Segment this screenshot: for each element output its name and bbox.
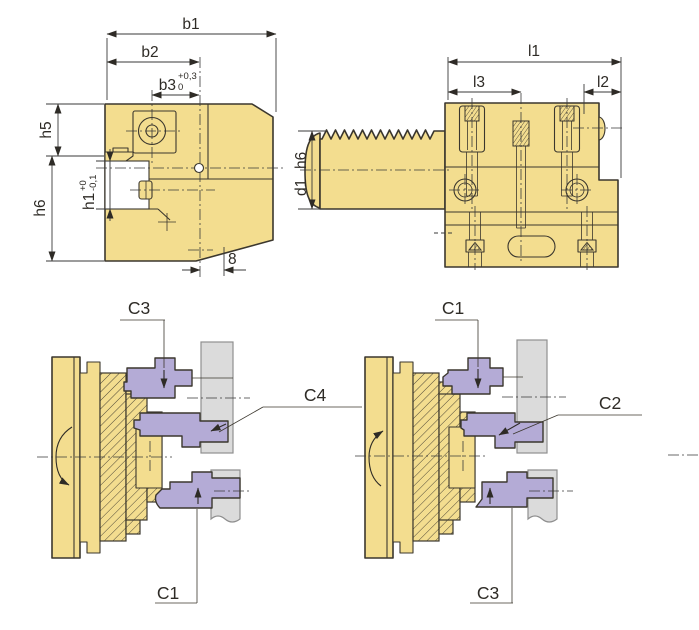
slot-lip <box>105 152 133 161</box>
dim-b3: b3 +0,3 0 <box>152 71 199 95</box>
label-c3: C3 <box>128 298 150 318</box>
technical-drawing-page: b1 b2 b3 +0,3 0 h5 h6 <box>0 0 699 630</box>
dim-h1-label: h1 <box>81 193 98 210</box>
dim-h1-tol-lower: -0,1 <box>88 175 99 191</box>
label-c1-leader: C1 <box>435 298 478 367</box>
front-view: b1 b2 b3 +0,3 0 h5 h6 <box>32 16 285 278</box>
side-view: l1 l3 l2 d1 h6 <box>293 43 622 270</box>
dim-h6-label: h6 <box>32 199 49 216</box>
dim-d1-tol-label: h6 <box>293 152 310 169</box>
label-c4: C4 <box>304 385 327 405</box>
dim-l3: l3 <box>448 74 521 92</box>
slot-lip-wedge <box>113 148 128 152</box>
right-setup-diagram: C1 C2 C3 <box>355 298 699 603</box>
dim-b2: b2 <box>107 44 199 62</box>
tool-holder-drawing: b1 b2 b3 +0,3 0 h5 h6 <box>0 0 699 630</box>
pilot-hole <box>195 164 204 173</box>
dim-d1-label: d1 <box>293 179 310 196</box>
dim-h5-label: h5 <box>38 121 55 138</box>
dim-b3-tol-upper: +0,3 <box>178 71 197 82</box>
dim-h5: h5 <box>38 104 104 156</box>
dim-b1: b1 <box>107 16 276 112</box>
side-pin-bump <box>599 117 605 140</box>
label-c1: C1 <box>157 583 179 603</box>
dim-b1-label: b1 <box>182 16 199 33</box>
serrated-shank <box>320 130 445 209</box>
label-c3-leader: C3 <box>470 508 513 603</box>
label-c2: C2 <box>599 393 621 413</box>
dim-8-label: 8 <box>228 251 237 268</box>
dim-b2-label: b2 <box>141 44 158 61</box>
label-c1-leader: C1 <box>155 509 197 603</box>
label-c1: C1 <box>442 298 464 318</box>
tool-c3-top <box>124 358 192 398</box>
left-setup-diagram: C3 C4 C1 <box>37 298 362 603</box>
dim-b3-label: b3 <box>159 77 176 94</box>
tool-c1-top <box>443 358 503 394</box>
label-c4-leader: C4 <box>219 385 362 432</box>
dim-l1-label: l1 <box>528 43 540 60</box>
dim-l3-label: l3 <box>473 74 485 91</box>
dim-b3-tol-lower: 0 <box>178 82 183 93</box>
label-c3: C3 <box>477 583 499 603</box>
dim-l2-label: l2 <box>597 74 609 91</box>
